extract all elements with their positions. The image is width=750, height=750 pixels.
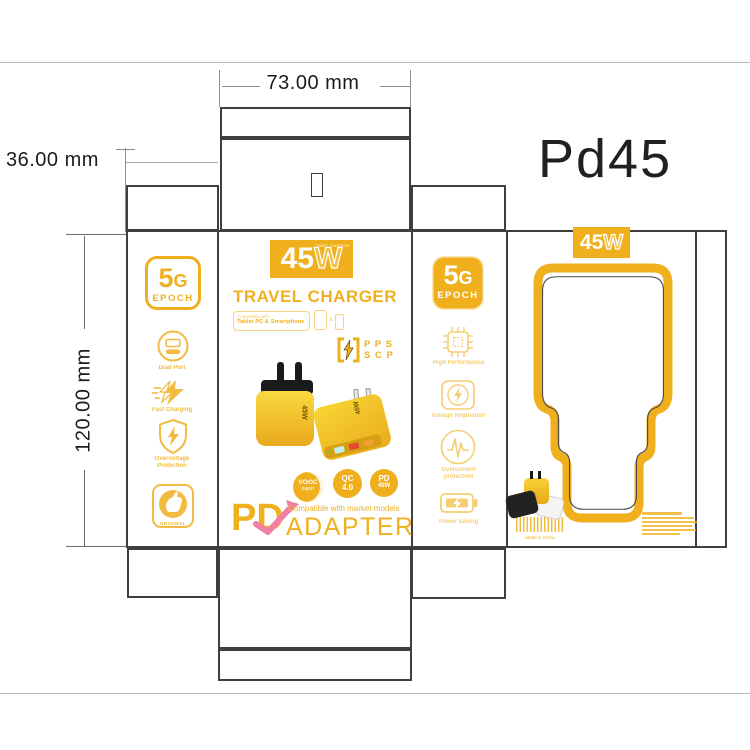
front-power-badge: 45W FAST CHARGE bbox=[270, 240, 353, 278]
vooc-badge: VOOC super bbox=[293, 472, 323, 502]
thumb-pin-1 bbox=[530, 471, 533, 479]
spec-text-lines bbox=[642, 512, 698, 537]
made-in-text: Made in China bbox=[514, 535, 566, 540]
panel-divider-2 bbox=[411, 230, 413, 548]
vooc-line2: super bbox=[293, 486, 323, 492]
scp-text: S C P bbox=[364, 350, 394, 361]
flap-dimension-line bbox=[126, 162, 218, 163]
panel-divider-4 bbox=[695, 230, 697, 548]
charger-led bbox=[327, 450, 331, 454]
left-bottom-flap bbox=[127, 548, 218, 598]
hang-slot bbox=[311, 173, 323, 197]
power-saving-battery-icon bbox=[440, 491, 478, 515]
charger-body-standing: 45W bbox=[256, 391, 314, 446]
canvas-top-line bbox=[0, 62, 750, 63]
canvas-bottom-line bbox=[0, 693, 750, 694]
qc-badge: QC 4.0 bbox=[333, 469, 362, 498]
feature-label: Voltage Regulation bbox=[411, 413, 506, 420]
feature-label: High Performance bbox=[411, 360, 506, 367]
compatible-market-text: Compatible with market models bbox=[288, 504, 400, 513]
charger-side-label: 45W bbox=[300, 405, 307, 419]
vooc-line1: VOOC bbox=[293, 479, 323, 486]
height-tick-bottom bbox=[66, 546, 128, 547]
feature-label-line1: Overvoltage bbox=[126, 456, 218, 463]
adapter-wordmark: ADAPTER bbox=[286, 513, 415, 542]
compatibility-line2: Tablet PC & Smartphone bbox=[237, 319, 306, 325]
height-tick-top bbox=[66, 234, 128, 235]
fast-charging-icon bbox=[152, 380, 192, 405]
badge-5-text: 5 bbox=[443, 260, 458, 290]
compatibility-ampersand: & bbox=[329, 317, 333, 323]
side-5g-epoch-badge: 5G EPOCH bbox=[432, 256, 484, 310]
usb-port-3 bbox=[363, 439, 374, 447]
feature-label-line2: Protection bbox=[126, 463, 218, 470]
feature-label: Dual Port bbox=[126, 365, 218, 372]
phone-icon bbox=[335, 314, 344, 330]
feature-label-line1: Overcurrent bbox=[411, 467, 506, 474]
dual-port-icon bbox=[157, 330, 189, 362]
feature-label: ORIGINAL bbox=[152, 520, 194, 527]
front-title: TRAVEL CHARGER bbox=[218, 287, 412, 307]
charger-port-strip bbox=[323, 434, 382, 460]
feature-label: Power Saving bbox=[411, 519, 506, 526]
left-5g-epoch-badge: 5G EPOCH bbox=[145, 256, 201, 310]
usb-port-1 bbox=[334, 446, 345, 454]
top-glue-strip bbox=[220, 107, 411, 138]
bottom-glue-strip bbox=[218, 649, 412, 681]
pd-badge: PD 45W bbox=[370, 469, 398, 497]
right-top-flap bbox=[411, 185, 506, 231]
front-bottom-flap bbox=[218, 548, 412, 649]
badge-5-text: 5 bbox=[158, 263, 173, 293]
badge-sub-text: FAST CHARGE bbox=[316, 244, 350, 248]
overcurrent-wave-icon bbox=[440, 429, 476, 465]
back-power-badge: 45W bbox=[573, 227, 630, 258]
voltage-regulation-icon bbox=[441, 380, 475, 410]
qc-line1: QC bbox=[333, 474, 362, 483]
tablet-icon bbox=[314, 310, 327, 330]
panel-divider-1 bbox=[217, 230, 219, 548]
pd-line2: 45W bbox=[370, 483, 398, 490]
pd-line1: PD bbox=[370, 474, 398, 483]
usb-port-2 bbox=[348, 442, 359, 450]
badge-45-text: 45 bbox=[580, 231, 603, 254]
width-dimension-label: 73.00 mm bbox=[233, 72, 393, 95]
right-bottom-flap bbox=[411, 548, 506, 599]
chip-icon bbox=[441, 325, 475, 359]
flap-dimension-label: 36.00 mm bbox=[6, 149, 114, 172]
qc-line2: 4.0 bbox=[333, 483, 362, 492]
overvoltage-shield-icon bbox=[158, 419, 188, 454]
badge-w-text: W bbox=[603, 231, 623, 254]
compatibility-box: Compatible with Tablet PC & Smartphone bbox=[233, 311, 310, 331]
feature-label: Fast Charging bbox=[126, 407, 218, 414]
width-dimension-line-right bbox=[380, 86, 411, 87]
badge-g-text: G bbox=[174, 271, 188, 291]
model-title: Pd45 bbox=[538, 128, 698, 190]
badge-g-text: G bbox=[459, 268, 473, 288]
width-extension-right bbox=[410, 70, 411, 107]
pps-text: P P S bbox=[364, 339, 393, 350]
height-dimension-label: 120.00 mm bbox=[73, 331, 96, 471]
width-dimension-line-left bbox=[222, 86, 260, 87]
badge-epoch-text: EPOCH bbox=[432, 290, 484, 301]
packaging-dieline-design: 73.00 mm 36.00 mm 120.00 mm Pd45 5G EPOC… bbox=[0, 0, 750, 750]
charger-top-label: 45W bbox=[352, 400, 362, 415]
left-top-flap bbox=[126, 185, 219, 231]
thumb-pin-2 bbox=[538, 471, 541, 479]
height-dimension-line-bottom bbox=[84, 470, 85, 547]
width-extension-left bbox=[219, 70, 220, 107]
feature-label-line2: protection bbox=[411, 474, 506, 481]
compatibility-line1: Compatible with bbox=[237, 314, 306, 319]
height-dimension-line-top bbox=[84, 236, 85, 329]
badge-45-text: 45 bbox=[281, 242, 314, 275]
pps-bolt-icon bbox=[336, 337, 361, 363]
badge-epoch-text: EPOCH bbox=[148, 293, 198, 304]
